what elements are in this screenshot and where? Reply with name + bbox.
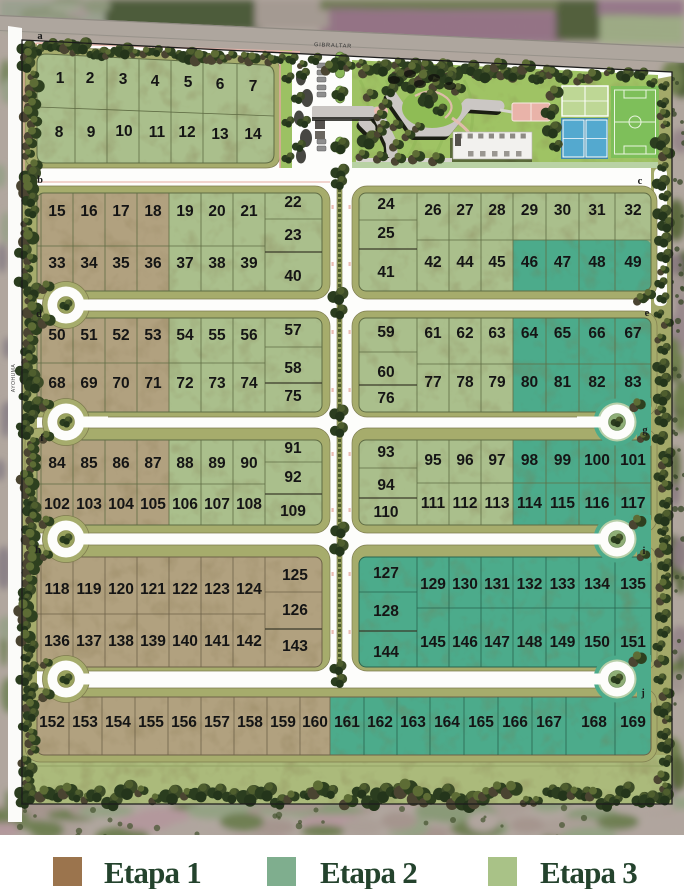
svg-text:112: 112 [452, 495, 477, 512]
svg-text:3: 3 [119, 71, 128, 88]
svg-text:78: 78 [456, 374, 474, 391]
svg-text:2: 2 [86, 70, 95, 87]
svg-text:57: 57 [284, 322, 301, 339]
svg-text:56: 56 [240, 327, 258, 344]
svg-text:104: 104 [108, 496, 134, 513]
svg-text:94: 94 [377, 477, 395, 494]
svg-text:131: 131 [484, 576, 510, 593]
svg-text:167: 167 [536, 714, 562, 731]
svg-text:83: 83 [624, 374, 642, 391]
svg-text:134: 134 [584, 576, 610, 593]
svg-text:81: 81 [554, 374, 572, 391]
svg-text:122: 122 [172, 581, 198, 598]
svg-text:152: 152 [39, 714, 65, 731]
svg-text:10: 10 [115, 123, 132, 140]
svg-text:163: 163 [400, 714, 426, 731]
svg-text:145: 145 [420, 634, 446, 651]
svg-text:27: 27 [456, 202, 473, 219]
svg-text:146: 146 [452, 634, 478, 651]
svg-text:73: 73 [208, 375, 226, 392]
svg-text:32: 32 [624, 202, 641, 219]
svg-text:95: 95 [424, 452, 442, 469]
svg-text:53: 53 [144, 327, 162, 344]
svg-text:48: 48 [588, 254, 606, 271]
svg-text:127: 127 [373, 565, 399, 582]
svg-text:30: 30 [554, 202, 571, 219]
svg-text:124: 124 [236, 581, 262, 598]
svg-text:144: 144 [373, 644, 399, 661]
svg-text:129: 129 [420, 576, 446, 593]
svg-text:155: 155 [138, 714, 164, 731]
svg-text:142: 142 [236, 633, 262, 650]
svg-text:138: 138 [108, 633, 134, 650]
svg-text:149: 149 [550, 634, 576, 651]
svg-text:141: 141 [204, 633, 230, 650]
svg-text:e: e [645, 308, 650, 319]
svg-text:97: 97 [488, 452, 505, 469]
svg-text:21: 21 [240, 203, 258, 220]
svg-text:108: 108 [236, 496, 262, 513]
svg-text:36: 36 [144, 255, 162, 272]
svg-text:68: 68 [48, 375, 66, 392]
svg-text:5: 5 [184, 74, 193, 91]
svg-text:87: 87 [144, 455, 161, 472]
svg-text:93: 93 [377, 444, 395, 461]
svg-text:136: 136 [44, 633, 70, 650]
svg-text:80: 80 [521, 374, 538, 391]
svg-text:Etapa 3: Etapa 3 [540, 855, 637, 889]
svg-text:15: 15 [48, 203, 66, 220]
svg-text:65: 65 [554, 325, 572, 342]
svg-text:71: 71 [144, 375, 162, 392]
svg-text:j: j [640, 688, 645, 699]
svg-text:157: 157 [204, 714, 230, 731]
svg-text:89: 89 [208, 455, 226, 472]
svg-text:45: 45 [488, 254, 506, 271]
svg-text:66: 66 [588, 325, 606, 342]
svg-text:26: 26 [424, 202, 442, 219]
svg-text:c: c [638, 176, 643, 187]
svg-text:28: 28 [488, 202, 506, 219]
svg-text:72: 72 [176, 375, 193, 392]
svg-text:109: 109 [280, 503, 306, 520]
svg-text:33: 33 [48, 255, 66, 272]
svg-text:99: 99 [554, 452, 572, 469]
svg-text:151: 151 [620, 634, 646, 651]
svg-text:113: 113 [484, 495, 509, 512]
svg-text:77: 77 [424, 374, 441, 391]
svg-text:19: 19 [176, 203, 194, 220]
svg-text:115: 115 [550, 495, 575, 512]
svg-text:20: 20 [208, 203, 225, 220]
svg-text:135: 135 [620, 576, 646, 593]
svg-text:d: d [36, 309, 42, 320]
svg-text:46: 46 [521, 254, 539, 271]
svg-text:133: 133 [550, 576, 576, 593]
svg-text:86: 86 [112, 455, 130, 472]
svg-text:29: 29 [521, 202, 539, 219]
svg-text:14: 14 [244, 126, 262, 143]
svg-text:161: 161 [334, 714, 360, 731]
svg-text:130: 130 [452, 576, 478, 593]
svg-text:126: 126 [282, 602, 308, 619]
svg-text:39: 39 [240, 255, 258, 272]
svg-text:g: g [642, 425, 648, 436]
svg-text:147: 147 [484, 634, 510, 651]
svg-text:17: 17 [112, 203, 129, 220]
svg-text:118: 118 [44, 581, 69, 598]
svg-text:Etapa 2: Etapa 2 [320, 855, 417, 889]
svg-text:121: 121 [140, 581, 166, 598]
svg-text:1: 1 [56, 70, 65, 87]
svg-text:82: 82 [588, 374, 605, 391]
svg-text:35: 35 [112, 255, 130, 272]
svg-text:111: 111 [421, 495, 446, 512]
svg-text:100: 100 [584, 452, 610, 469]
svg-text:75: 75 [284, 388, 302, 405]
svg-text:9: 9 [87, 124, 96, 141]
svg-text:140: 140 [172, 633, 198, 650]
svg-text:119: 119 [76, 581, 101, 598]
svg-text:8: 8 [55, 124, 64, 141]
svg-text:59: 59 [377, 324, 395, 341]
svg-text:114: 114 [517, 495, 542, 512]
svg-text:38: 38 [208, 255, 226, 272]
svg-text:67: 67 [624, 325, 641, 342]
svg-text:164: 164 [434, 714, 460, 731]
svg-text:70: 70 [112, 375, 129, 392]
svg-text:125: 125 [282, 567, 308, 584]
svg-text:150: 150 [584, 634, 610, 651]
svg-text:12: 12 [178, 124, 195, 141]
svg-text:54: 54 [176, 327, 194, 344]
svg-text:156: 156 [171, 714, 197, 731]
svg-text:96: 96 [456, 452, 474, 469]
svg-text:52: 52 [112, 327, 129, 344]
svg-text:58: 58 [284, 360, 302, 377]
svg-text:85: 85 [80, 455, 98, 472]
svg-text:63: 63 [488, 325, 506, 342]
svg-text:47: 47 [554, 254, 571, 271]
svg-text:31: 31 [588, 202, 606, 219]
svg-text:74: 74 [240, 375, 258, 392]
svg-text:62: 62 [456, 325, 473, 342]
svg-text:h: h [35, 545, 41, 556]
svg-text:90: 90 [240, 455, 257, 472]
svg-text:98: 98 [521, 452, 539, 469]
svg-text:23: 23 [284, 227, 302, 244]
svg-text:123: 123 [204, 581, 230, 598]
svg-text:154: 154 [105, 714, 131, 731]
svg-text:b: b [37, 175, 43, 186]
svg-text:40: 40 [284, 268, 301, 285]
svg-text:49: 49 [624, 254, 642, 271]
svg-text:55: 55 [208, 327, 226, 344]
svg-text:34: 34 [80, 255, 98, 272]
svg-text:44: 44 [456, 254, 474, 271]
svg-text:148: 148 [517, 634, 543, 651]
svg-text:169: 169 [620, 714, 646, 731]
svg-text:64: 64 [521, 325, 539, 342]
svg-text:105: 105 [140, 496, 166, 513]
svg-text:168: 168 [581, 714, 607, 731]
svg-text:106: 106 [172, 496, 198, 513]
svg-text:41: 41 [377, 264, 395, 281]
svg-text:91: 91 [284, 440, 302, 457]
svg-text:116: 116 [584, 495, 609, 512]
svg-text:92: 92 [284, 469, 301, 486]
svg-text:37: 37 [176, 255, 193, 272]
svg-text:60: 60 [377, 364, 394, 381]
svg-text:102: 102 [44, 496, 70, 513]
svg-text:24: 24 [377, 196, 395, 213]
svg-text:i: i [643, 546, 646, 557]
svg-text:6: 6 [216, 76, 225, 93]
svg-text:25: 25 [377, 225, 395, 242]
svg-text:162: 162 [367, 714, 393, 731]
svg-text:160: 160 [302, 714, 328, 731]
svg-text:159: 159 [270, 714, 296, 731]
svg-text:101: 101 [620, 452, 646, 469]
svg-text:22: 22 [284, 194, 301, 211]
svg-text:88: 88 [176, 455, 194, 472]
svg-text:7: 7 [249, 78, 258, 95]
svg-text:4: 4 [151, 73, 160, 90]
svg-text:117: 117 [620, 495, 645, 512]
svg-text:128: 128 [373, 603, 399, 620]
svg-text:165: 165 [468, 714, 494, 731]
svg-text:166: 166 [502, 714, 528, 731]
svg-text:f: f [40, 433, 44, 444]
svg-text:120: 120 [108, 581, 134, 598]
svg-text:158: 158 [237, 714, 263, 731]
svg-text:110: 110 [373, 504, 398, 521]
svg-text:76: 76 [377, 390, 395, 407]
svg-text:61: 61 [424, 325, 442, 342]
svg-text:132: 132 [517, 576, 543, 593]
svg-text:16: 16 [80, 203, 98, 220]
svg-text:103: 103 [76, 496, 102, 513]
svg-text:13: 13 [211, 126, 229, 143]
svg-text:Etapa 1: Etapa 1 [104, 855, 201, 889]
svg-text:107: 107 [204, 496, 230, 513]
svg-text:84: 84 [48, 455, 66, 472]
svg-text:50: 50 [48, 327, 65, 344]
svg-text:79: 79 [488, 374, 506, 391]
svg-text:137: 137 [76, 633, 102, 650]
svg-text:11: 11 [149, 124, 166, 141]
svg-text:139: 139 [140, 633, 166, 650]
svg-text:69: 69 [80, 375, 98, 392]
svg-text:a: a [37, 31, 43, 42]
svg-text:51: 51 [80, 327, 98, 344]
svg-text:42: 42 [424, 254, 441, 271]
svg-text:153: 153 [72, 714, 98, 731]
svg-text:143: 143 [282, 638, 308, 655]
svg-text:18: 18 [144, 203, 162, 220]
